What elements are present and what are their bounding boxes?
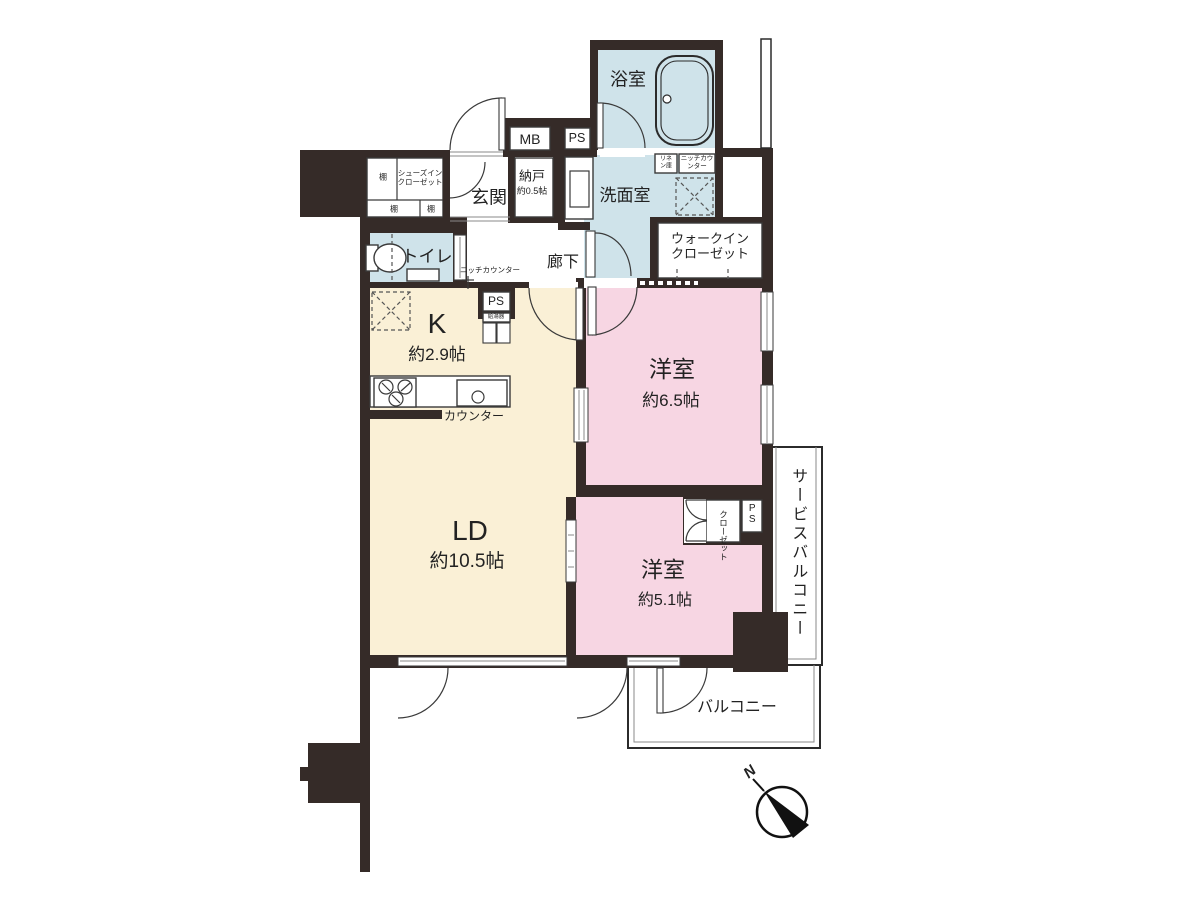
label-linen: リネン庫 xyxy=(659,156,673,169)
floorplan: 浴室 洗面室 トイレ 玄関 納戸 約0.5帖 廊下 シューズインクローゼット 棚… xyxy=(0,0,1200,900)
label-closet: クローゼット xyxy=(719,510,728,532)
wall-segment xyxy=(300,150,450,158)
wall-segment xyxy=(300,767,309,781)
terrace-door-arc xyxy=(398,668,448,718)
entrance-door-arc xyxy=(450,98,502,150)
wall-segment xyxy=(308,743,361,803)
toilet-counter xyxy=(407,269,439,281)
label-meter-box: MB xyxy=(520,131,541,147)
compass xyxy=(753,779,809,838)
entrance-door-leaf xyxy=(499,98,505,150)
wall-segment xyxy=(733,612,788,672)
wall-segment xyxy=(650,217,773,223)
ld-door-leaf xyxy=(576,288,583,340)
label-niche-counter-hall: ニッチカウンター xyxy=(460,267,520,276)
label-bedroom2: 洋室 xyxy=(641,557,685,582)
wall-segment xyxy=(300,150,367,217)
ld-bedroom1-sliding-door xyxy=(574,388,588,442)
wall-segment xyxy=(443,157,450,223)
label-shelf: 棚 xyxy=(390,204,398,213)
label-kitchen: K xyxy=(428,308,447,340)
wall-segment xyxy=(576,485,763,497)
label-entrance: 玄関 xyxy=(471,188,507,209)
kitchen-half-wall xyxy=(360,410,442,419)
compass-tip xyxy=(753,779,764,791)
label-toilet: トイレ xyxy=(402,247,453,267)
bathtub-handle xyxy=(663,95,671,103)
entrance-doorway xyxy=(450,150,503,158)
water-heater-door xyxy=(497,323,510,343)
wall-segment xyxy=(367,217,455,233)
floorplan-drawing xyxy=(0,0,1200,900)
bath-door-leaf xyxy=(597,103,603,148)
bedroom1-door-leaf xyxy=(588,287,596,335)
label-bedroom2-size: 約5.1帖 xyxy=(638,592,692,610)
ld-doorway xyxy=(529,282,578,288)
label-storage-size: 約0.5帖 xyxy=(517,186,548,196)
water-heater-door xyxy=(483,323,496,343)
wall-segment xyxy=(715,157,723,217)
label-walkin-closet: ウォークインクローゼット xyxy=(668,232,752,262)
label-shoe-closet: シューズインクローゼット xyxy=(396,169,444,186)
label-water-heater: 給湯器 xyxy=(488,314,505,320)
label-service-balcony: サービスバルコニー xyxy=(788,468,806,639)
label-pipe-space-bedroom: PS xyxy=(746,499,758,529)
wall-segment xyxy=(558,222,590,230)
label-storage: 納戸 xyxy=(519,170,545,185)
label-kitchen-size: 約2.9帖 xyxy=(408,345,466,365)
label-counter: カウンター xyxy=(444,410,504,424)
wall-segment xyxy=(360,667,370,872)
label-niche-counter-washroom: ニッチカウンター xyxy=(680,155,714,171)
label-bedroom1: 洋室 xyxy=(649,356,695,382)
wall-segment xyxy=(715,40,723,157)
terrace-door-arc xyxy=(577,668,627,718)
label-shelf: 棚 xyxy=(379,172,387,181)
wall-segment xyxy=(650,217,658,278)
bath-doorway xyxy=(600,148,645,157)
label-pipe-space-kitchen: PS xyxy=(488,295,504,309)
label-shelf: 棚 xyxy=(427,204,435,213)
kitchen-living-area xyxy=(368,288,576,660)
label-living-dining: LD xyxy=(452,515,488,547)
label-living-dining-size: 約10.5帖 xyxy=(430,551,505,573)
label-washroom: 洗面室 xyxy=(600,186,651,206)
wall-segment xyxy=(553,157,565,223)
wall-segment xyxy=(508,157,515,217)
balcony-door-leaf xyxy=(657,668,663,713)
bedroom1-area xyxy=(586,285,763,485)
wall-segment xyxy=(590,40,723,50)
label-bedroom1-size: 約6.5帖 xyxy=(642,391,700,411)
label-hallway: 廊下 xyxy=(547,254,579,272)
label-pipe-space-top: PS xyxy=(569,131,586,145)
corridor-rail xyxy=(761,39,771,148)
washroom-door-leaf xyxy=(586,231,595,277)
label-bath: 浴室 xyxy=(610,70,646,91)
label-balcony: バルコニー xyxy=(697,699,777,717)
